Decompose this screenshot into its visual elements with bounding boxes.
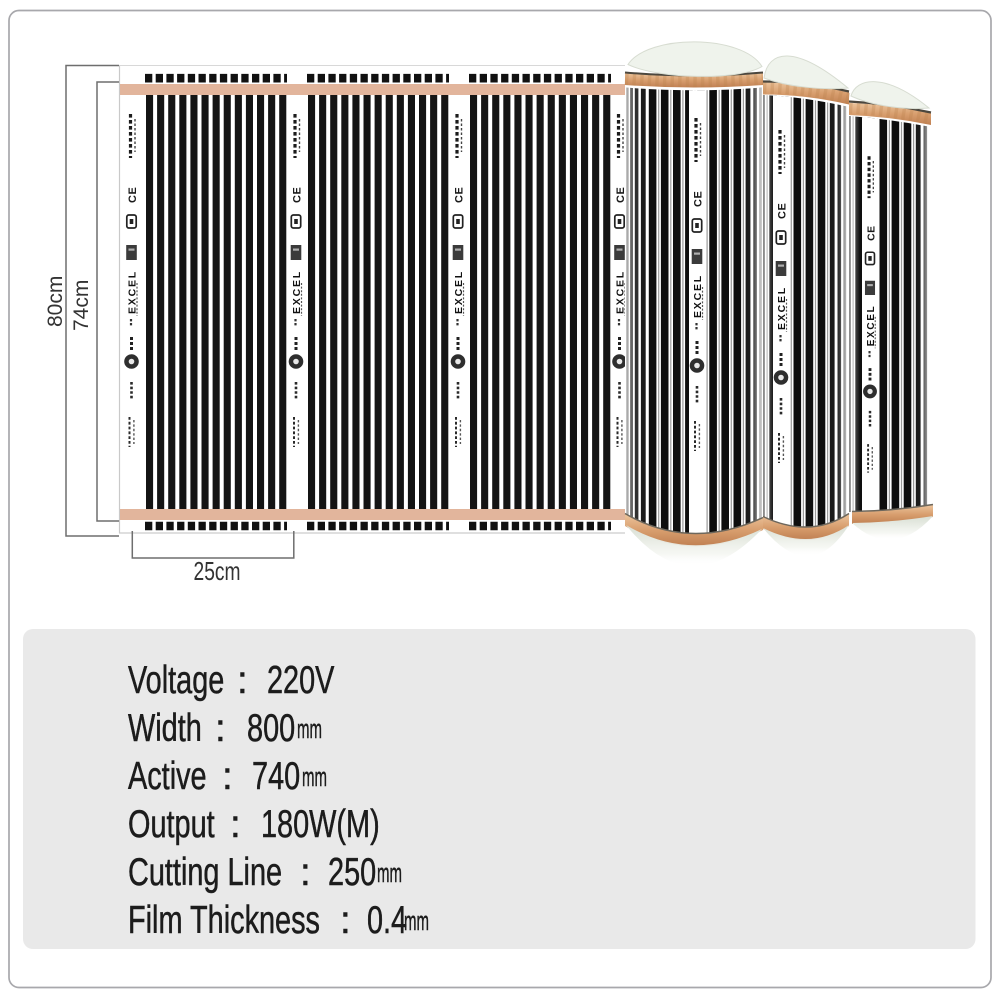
- svg-text:Width:800mm: Width:800mm: [128, 707, 322, 750]
- svg-text:74cm: 74cm: [70, 280, 93, 331]
- svg-text:80cm: 80cm: [44, 276, 67, 327]
- svg-text:Cutting Line:250mm: Cutting Line:250mm: [128, 851, 402, 894]
- svg-text:25cm: 25cm: [194, 556, 241, 586]
- svg-text:Active:740mm: Active:740mm: [128, 755, 327, 798]
- svg-text:Film Thickness:0.4mm: Film Thickness:0.4mm: [128, 899, 429, 942]
